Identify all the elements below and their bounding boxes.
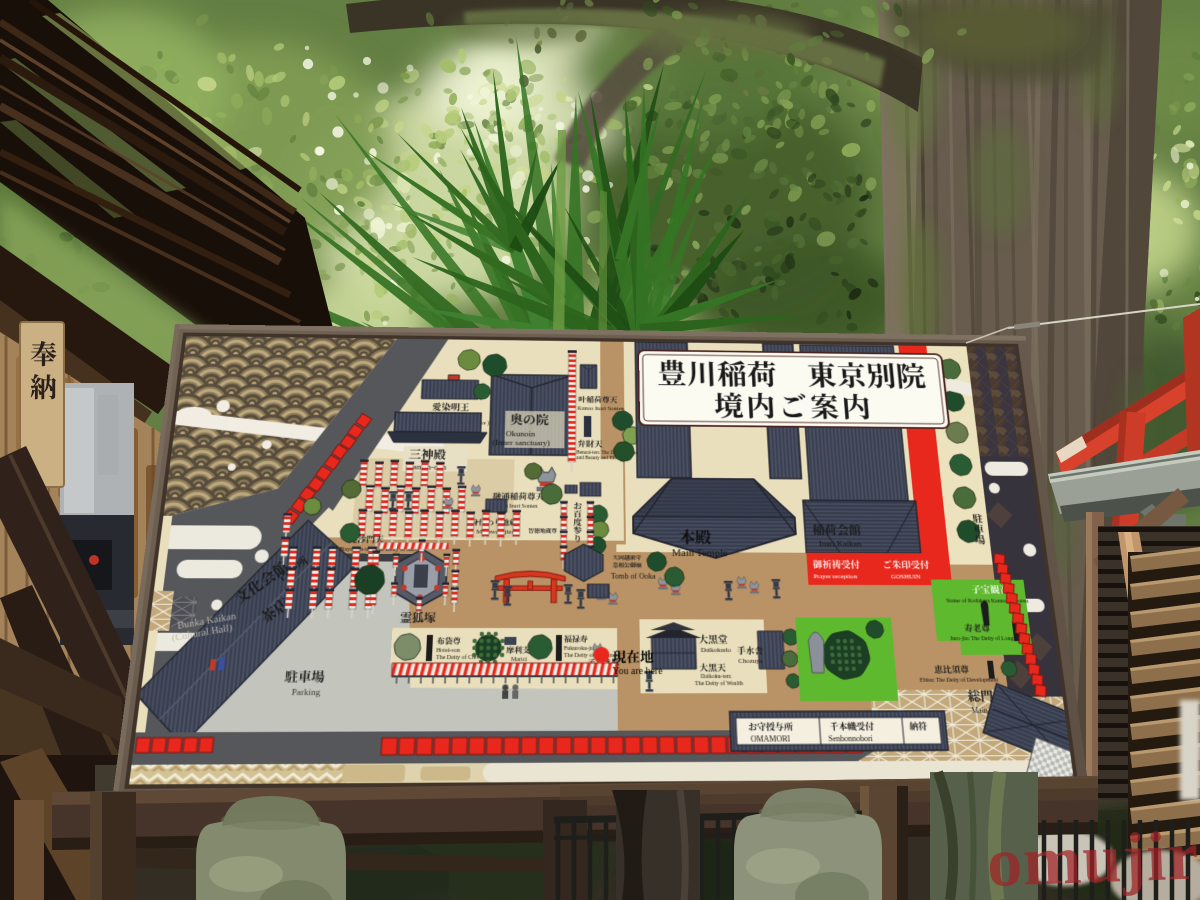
svg-text:Marici: Marici	[511, 656, 528, 663]
svg-text:Chozuya: Chozuya	[738, 658, 763, 665]
svg-text:Ebisu: The Deity of Developmen: Ebisu: The Deity of Development	[919, 676, 999, 684]
svg-text:Main Temple: Main Temple	[672, 548, 728, 559]
svg-text:Daikokudo: Daikokudo	[701, 647, 732, 654]
svg-text:Parking: Parking	[291, 687, 321, 698]
svg-text:Tomb of Ooka: Tomb of Ooka	[611, 573, 656, 581]
svg-text:OMAMORI: OMAMORI	[751, 735, 792, 744]
svg-text:Inari Kaikan: Inari Kaikan	[819, 539, 862, 549]
svg-text:The Deity of Wealth: The Deity of Wealth	[695, 679, 744, 687]
svg-text:(Inner sanctuary): (Inner sanctuary)	[492, 438, 550, 448]
svg-text:Kanoo Inari Sonten: Kanoo Inari Sonten	[577, 406, 624, 413]
svg-text:The Deity of Happiness: The Deity of Happiness	[564, 651, 621, 659]
svg-text:GOSHUIN: GOSHUIN	[891, 574, 922, 581]
svg-text:You are here: You are here	[612, 665, 662, 677]
svg-text:Fukuroku-ju: Fukuroku-ju	[564, 645, 594, 652]
svg-text:Daikoku-ten:: Daikoku-ten:	[700, 673, 732, 680]
svg-text:Prayer reception: Prayer reception	[813, 574, 857, 581]
svg-text:Hotei-son: Hotei-son	[436, 647, 460, 654]
svg-text:Senbonnobori: Senbonnobori	[828, 735, 873, 744]
